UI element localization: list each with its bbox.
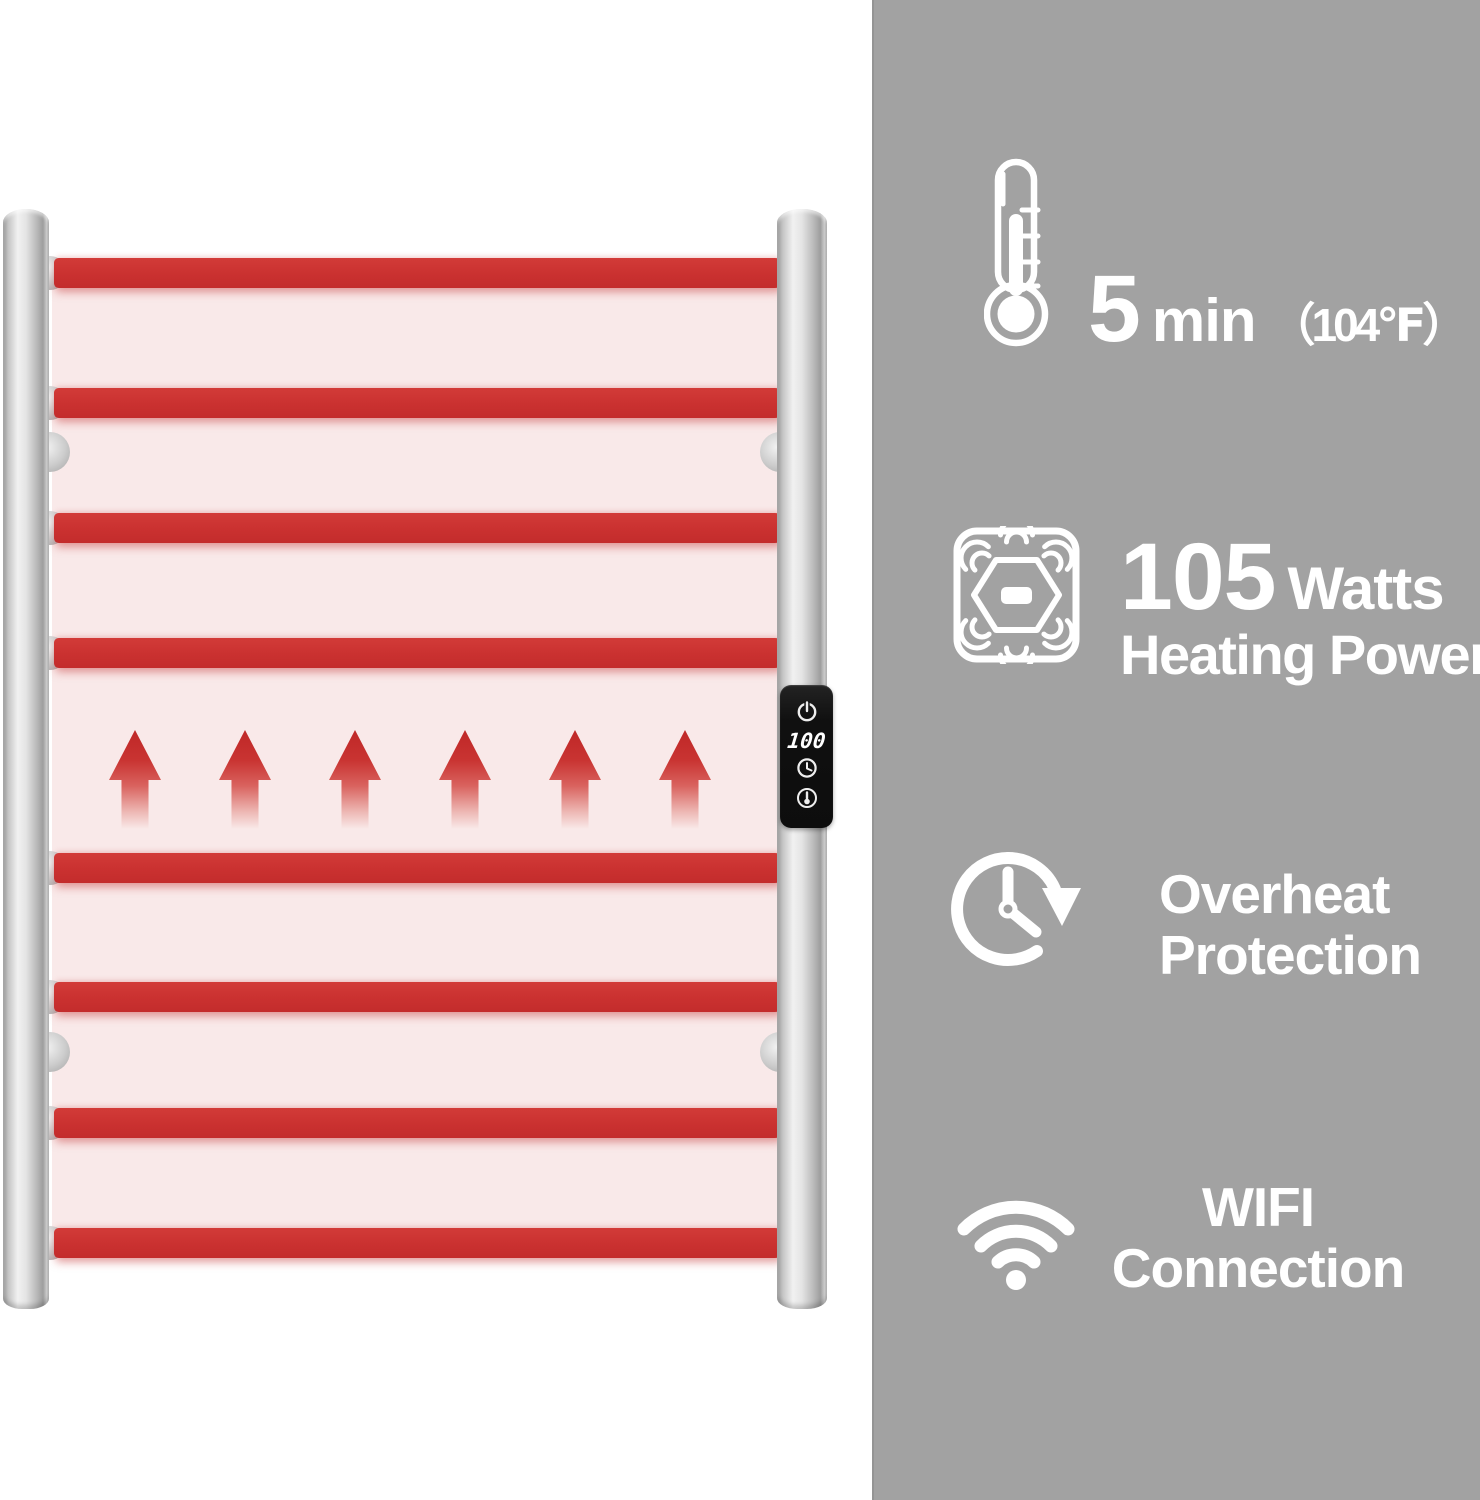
feature-overheat-protection: Overheat Protection bbox=[1159, 864, 1421, 986]
features-panel: 5 min （104℉） bbox=[872, 0, 1480, 1500]
heating-rung bbox=[54, 388, 790, 418]
heating-rung bbox=[54, 1228, 790, 1258]
thermometer-icon bbox=[984, 158, 1056, 350]
feature-preheat-time: 5 min （104℉） bbox=[1088, 262, 1464, 357]
heating-rung bbox=[54, 1108, 790, 1138]
feature-wifi-connection: WIFI Connection bbox=[1098, 1177, 1418, 1299]
towel-rack: 100 bbox=[0, 0, 872, 1500]
preheat-temp-note: （104℉） bbox=[1270, 289, 1465, 355]
feature-heating-power: 105 Watts Heating Power bbox=[1120, 530, 1480, 685]
power-icon bbox=[794, 698, 820, 724]
preheat-minutes: 5 bbox=[1088, 262, 1140, 357]
wifi-icon bbox=[948, 1182, 1084, 1294]
heating-power-icon bbox=[952, 526, 1081, 664]
product-infographic: 100 bbox=[0, 0, 1480, 1500]
preheat-unit: min bbox=[1152, 286, 1256, 355]
overheat-line2: Protection bbox=[1159, 925, 1421, 986]
heating-rung bbox=[54, 258, 790, 288]
power-label: Heating Power bbox=[1120, 625, 1480, 685]
control-panel: 100 bbox=[780, 685, 833, 828]
timer-icon bbox=[794, 755, 820, 781]
heating-rung bbox=[54, 513, 790, 543]
temperature-display: 100 bbox=[779, 729, 835, 753]
heating-rung bbox=[54, 638, 790, 668]
overheat-line1: Overheat bbox=[1159, 864, 1421, 925]
heating-rung bbox=[54, 853, 790, 883]
wifi-line2: Connection bbox=[1098, 1238, 1418, 1299]
power-watts-unit: Watts bbox=[1288, 554, 1444, 623]
power-watts-value: 105 bbox=[1120, 530, 1276, 625]
overheat-protection-icon bbox=[946, 846, 1096, 976]
temperature-icon bbox=[794, 785, 820, 811]
heating-rung bbox=[54, 982, 790, 1012]
rack-rail-left bbox=[3, 209, 49, 1309]
wifi-line1: WIFI bbox=[1098, 1177, 1418, 1238]
